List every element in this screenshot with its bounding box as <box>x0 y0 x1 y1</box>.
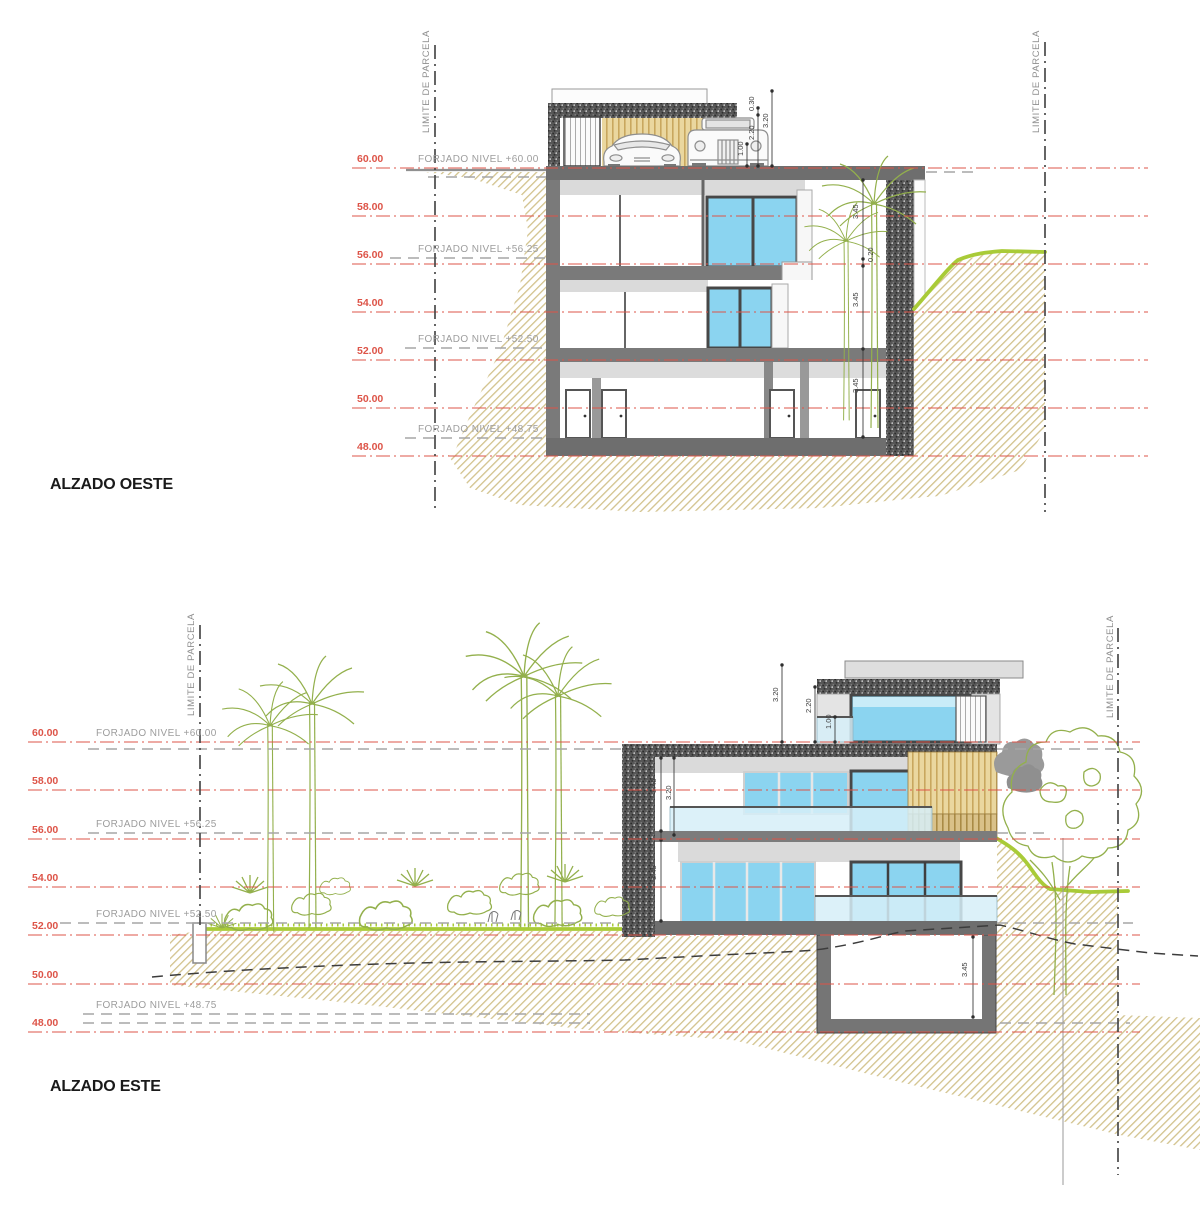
dim-label: 1.00 <box>824 714 833 729</box>
dim-label: 3.45 <box>960 962 969 977</box>
elevation-west: 1.00 2.20 0.30 3.20 3.45 0.20 3.45 3.45 … <box>50 30 1148 512</box>
slab-5625 <box>655 831 997 842</box>
level-label: 50.00 <box>357 393 383 405</box>
dim-label: 3.45 <box>851 204 860 219</box>
dim-label: 3.45 <box>851 292 860 307</box>
garage-parapet <box>552 89 707 104</box>
retaining-wall-left <box>622 744 655 937</box>
forjado-label: FORJADO NIVEL +56.25 <box>96 819 217 830</box>
lower-floor-fascia <box>560 362 912 378</box>
elevation-title-east: ALZADO ESTE <box>50 1078 161 1095</box>
main-glass-rail <box>815 896 997 923</box>
dim-label: 3.20 <box>771 687 780 702</box>
level-label: 56.00 <box>357 249 383 261</box>
fan-shrub-icon <box>397 868 433 886</box>
shrub-icon <box>448 891 492 915</box>
fan-shrub-icon <box>232 875 268 893</box>
architectural-elevations-sheet: 1.00 2.20 0.30 3.20 3.45 0.20 3.45 3.45 … <box>0 0 1200 1205</box>
level-label: 48.00 <box>357 441 383 453</box>
parcel-limit-label: LIMITE DE PARCELA <box>421 30 432 133</box>
shrub-icon <box>320 878 351 895</box>
forjado-label: FORJADO NIVEL +48.75 <box>96 1000 217 1011</box>
upper-glass-rail <box>670 807 932 833</box>
ground-plant-icon <box>488 911 521 923</box>
upper-floor-fascia <box>560 180 805 195</box>
level-label: 52.00 <box>357 345 383 357</box>
penthouse-roof-band <box>817 679 1000 694</box>
dim-label: 3.45 <box>851 378 860 393</box>
balcony-post <box>797 190 812 268</box>
dim-label: 3.45 <box>649 778 658 793</box>
level-label: 48.00 <box>32 1017 58 1029</box>
dim-label: 1.00 <box>736 141 745 156</box>
middle-floor-fascia <box>560 280 708 292</box>
main-floor-fascia <box>678 842 960 862</box>
partition-wall <box>800 362 809 438</box>
shrub-icon <box>500 873 539 895</box>
dim-label: 0.30 <box>747 96 756 111</box>
ground-hatch-west-bottom <box>448 455 925 512</box>
garden-wall-post <box>193 923 206 963</box>
forjado-label: FORJADO NIVEL +60.00 <box>418 154 539 165</box>
slab-5625 <box>546 266 788 280</box>
wood-slat-panel <box>908 752 997 814</box>
building-section-east: 3.45 3.20 3.45 <box>622 661 1023 937</box>
drawing-canvas: 1.00 2.20 0.30 3.20 3.45 0.20 3.45 3.45 … <box>0 0 1200 1205</box>
forjado-label: FORJADO NIVEL +52.50 <box>418 334 539 345</box>
garage-slat-door <box>564 117 600 166</box>
dim-label: 0.20 <box>866 247 875 262</box>
level-label: 60.00 <box>32 727 58 739</box>
forjado-label: FORJADO NIVEL +48.75 <box>418 424 539 435</box>
penthouse-window-transom <box>853 697 968 707</box>
parcel-limit-label: LIMITE DE PARCELA <box>1031 30 1042 133</box>
dim-label: 3.20 <box>761 113 770 128</box>
level-label: 58.00 <box>32 775 58 787</box>
elevation-title-west: ALZADO OESTE <box>50 476 173 493</box>
level-label: 54.00 <box>32 872 58 884</box>
dim-label: 3.45 <box>649 865 658 880</box>
level-label: 50.00 <box>32 969 58 981</box>
wall-left <box>546 166 560 456</box>
dim-label: 3.20 <box>664 785 673 800</box>
parcel-limit-label: LIMITE DE PARCELA <box>186 613 197 716</box>
level-label: 58.00 <box>357 201 383 213</box>
level-label: 54.00 <box>357 297 383 309</box>
fan-shrub-icon <box>547 864 583 882</box>
dim-label: 2.20 <box>747 125 756 140</box>
retaining-wall-speckle <box>886 180 914 456</box>
slab-4875 <box>546 438 925 456</box>
level-label: 56.00 <box>32 824 58 836</box>
garage-wall-left <box>548 103 560 166</box>
ground-hatch-east-slope <box>996 838 1118 1015</box>
garage-roof-band <box>548 103 737 118</box>
forjado-label: FORJADO NIVEL +56.25 <box>418 244 539 255</box>
forjado-label: FORJADO NIVEL +52.50 <box>96 909 217 920</box>
shrub-icon <box>292 893 331 915</box>
balcony-post <box>772 284 788 348</box>
penthouse-parapet <box>845 661 1023 678</box>
dim-label: 2.20 <box>804 698 813 713</box>
ground-hatch-west-left <box>425 172 548 458</box>
level-label: 60.00 <box>357 153 383 165</box>
palm-tree-icon <box>222 682 318 932</box>
forjado-label: FORJADO NIVEL +60.00 <box>96 728 217 739</box>
parcel-limit-label: LIMITE DE PARCELA <box>1105 615 1116 718</box>
elevation-east: 3.45 <box>28 613 1200 1185</box>
level-label: 52.00 <box>32 920 58 932</box>
penthouse-slat-door <box>956 696 986 742</box>
